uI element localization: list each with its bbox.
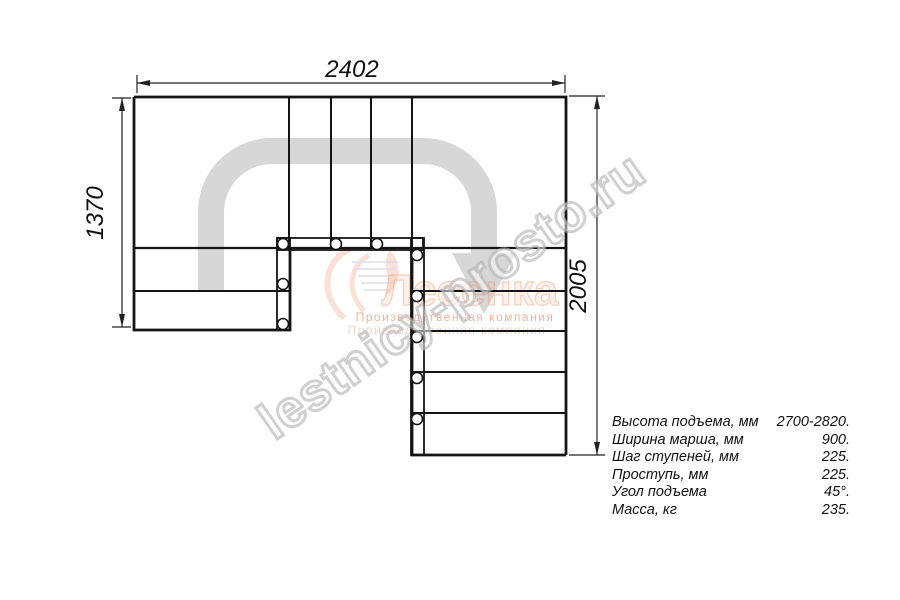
stair-plan-drawing: Лесенка Производственная компания Произв… — [0, 0, 900, 600]
spec-label: Проступь, мм — [612, 467, 708, 485]
baluster — [412, 414, 423, 425]
spec-row-step-pitch: Шаг ступеней, мм 225. — [612, 449, 850, 467]
spec-value: 235. — [822, 502, 850, 520]
dim-arrow-down-icon — [119, 314, 125, 327]
baluster — [412, 373, 423, 384]
baluster — [278, 239, 289, 250]
baluster — [412, 291, 423, 302]
dim-arrow-up-icon — [119, 98, 125, 111]
spec-label: Ширина марша, мм — [612, 432, 744, 450]
dimension-label-right: 2005 — [565, 259, 592, 314]
spec-label: Шаг ступеней, мм — [612, 449, 739, 467]
spec-label: Высота подъема, мм — [612, 414, 759, 432]
baluster — [412, 250, 423, 261]
spec-value: 900. — [822, 432, 850, 450]
spec-row-height: Высота подъема, мм 2700-2820. — [612, 414, 850, 432]
dim-arrow-down-icon — [594, 442, 600, 455]
baluster — [278, 279, 289, 290]
spec-row-mass: Масса, кг 235. — [612, 502, 850, 520]
dimension-label-left: 1370 — [82, 186, 109, 240]
logo-company-line-1: Производственная компания — [356, 310, 555, 324]
spec-table: Высота подъема, мм 2700-2820. Ширина мар… — [612, 414, 850, 520]
baluster — [278, 319, 289, 330]
dim-arrow-up-icon — [594, 96, 600, 109]
dimension-left — [112, 98, 131, 327]
baluster — [372, 239, 383, 250]
baluster — [331, 239, 342, 250]
spec-row-tread: Проступь, мм 225. — [612, 467, 850, 485]
spec-value: 225. — [822, 449, 850, 467]
spec-value: 2700-2820. — [777, 414, 850, 432]
dim-arrow-left-icon — [137, 80, 150, 86]
spec-row-flight-width: Ширина марша, мм 900. — [612, 432, 850, 450]
logo-watermark: Лесенка Производственная компания Произв… — [327, 249, 559, 337]
logo-swoosh-1 — [327, 249, 350, 318]
upper-flight-treads — [289, 97, 412, 248]
spec-row-angle: Угол подъема 45°. — [612, 484, 850, 502]
dim-arrow-right-icon — [552, 80, 565, 86]
spec-label: Масса, кг — [612, 502, 677, 520]
baluster — [412, 332, 423, 343]
spec-value: 225. — [822, 467, 850, 485]
spec-label: Угол подъема — [612, 484, 707, 502]
dimension-label-top: 2402 — [324, 56, 378, 83]
spec-value: 45°. — [824, 484, 850, 502]
